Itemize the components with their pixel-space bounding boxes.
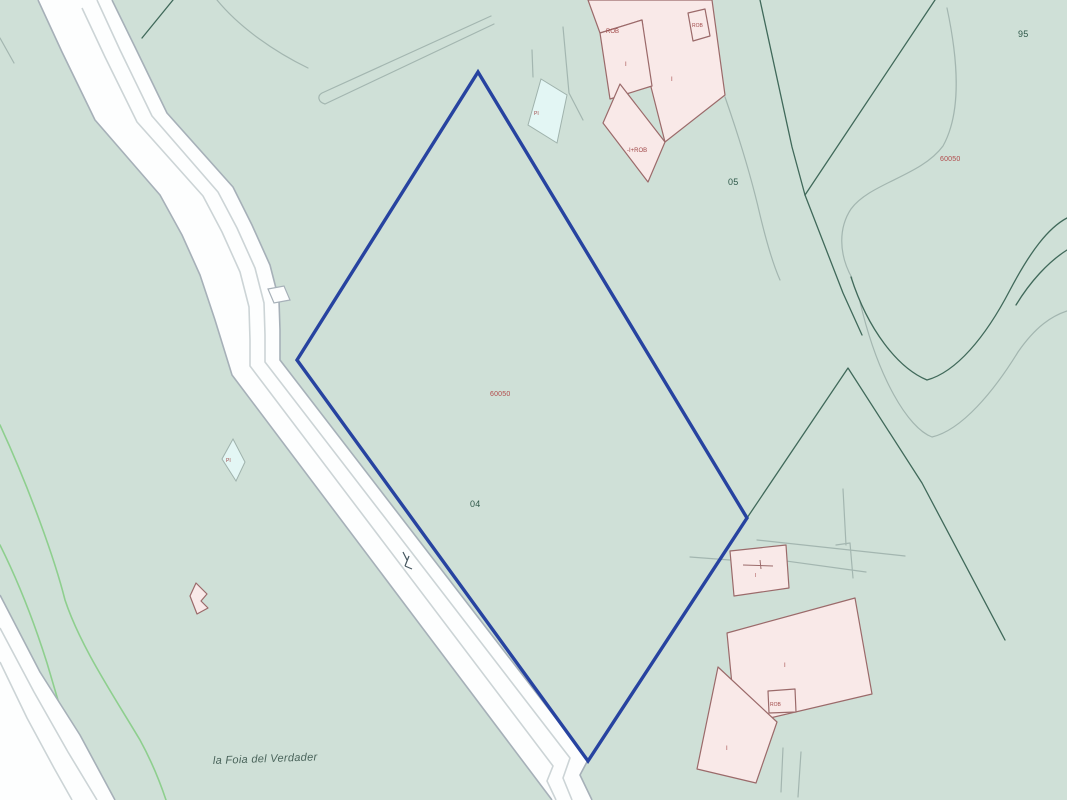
cadastral-map-svg: 04 05 95 60050 60050 ROB ROB I I -I+ROB … (0, 0, 1067, 800)
boundary-top-left-segment (142, 0, 173, 38)
building-label-rob-2: ROB (692, 23, 704, 29)
parcel-number-far-upper-right: 95 (1018, 29, 1029, 39)
dark-green-boundary-lines (142, 0, 1067, 640)
boundary-v-left-arm (760, 0, 805, 195)
parcel-number-selected: 04 (470, 499, 481, 509)
toponym-label: la Foia del Verdader (213, 751, 319, 767)
boundary-v-continuation (805, 195, 862, 335)
parcel-ref-selected: 60050 (490, 391, 510, 398)
boundary-building-link (725, 97, 780, 280)
boundary-curve-top-left (217, 0, 308, 68)
building-small-near-vertex (730, 545, 789, 596)
boundary-loop-upper-right (842, 8, 957, 278)
boundary-curve-right-inner (860, 302, 1067, 437)
building-label-floor-small: I (755, 573, 756, 579)
building-label-rob-1: ROB (606, 29, 619, 35)
parcel-number-upper-right: 05 (728, 177, 739, 187)
selected-parcel-boundary[interactable] (297, 72, 747, 761)
boundary-u-curve (851, 218, 1067, 380)
map-canvas[interactable]: 04 05 95 60050 60050 ROB ROB I I -I+ROB … (0, 0, 1067, 800)
building-label-basement: -I+ROB (627, 148, 647, 154)
parcel-ref-upper-right: 60050 (940, 156, 960, 163)
building-small-left (190, 583, 208, 614)
boundary-lambda (747, 368, 1005, 640)
boundary-v-right-arm (805, 0, 935, 195)
boundary-right-edge-segment (1016, 250, 1067, 305)
boundary-segment-far-left (0, 38, 14, 63)
building-label-rob-3: ROB (770, 702, 782, 708)
building-complex-top (588, 0, 725, 182)
pool-label-left: PI (226, 458, 231, 464)
pool-label-top: PI (534, 111, 539, 117)
building-large-notch (768, 689, 796, 713)
